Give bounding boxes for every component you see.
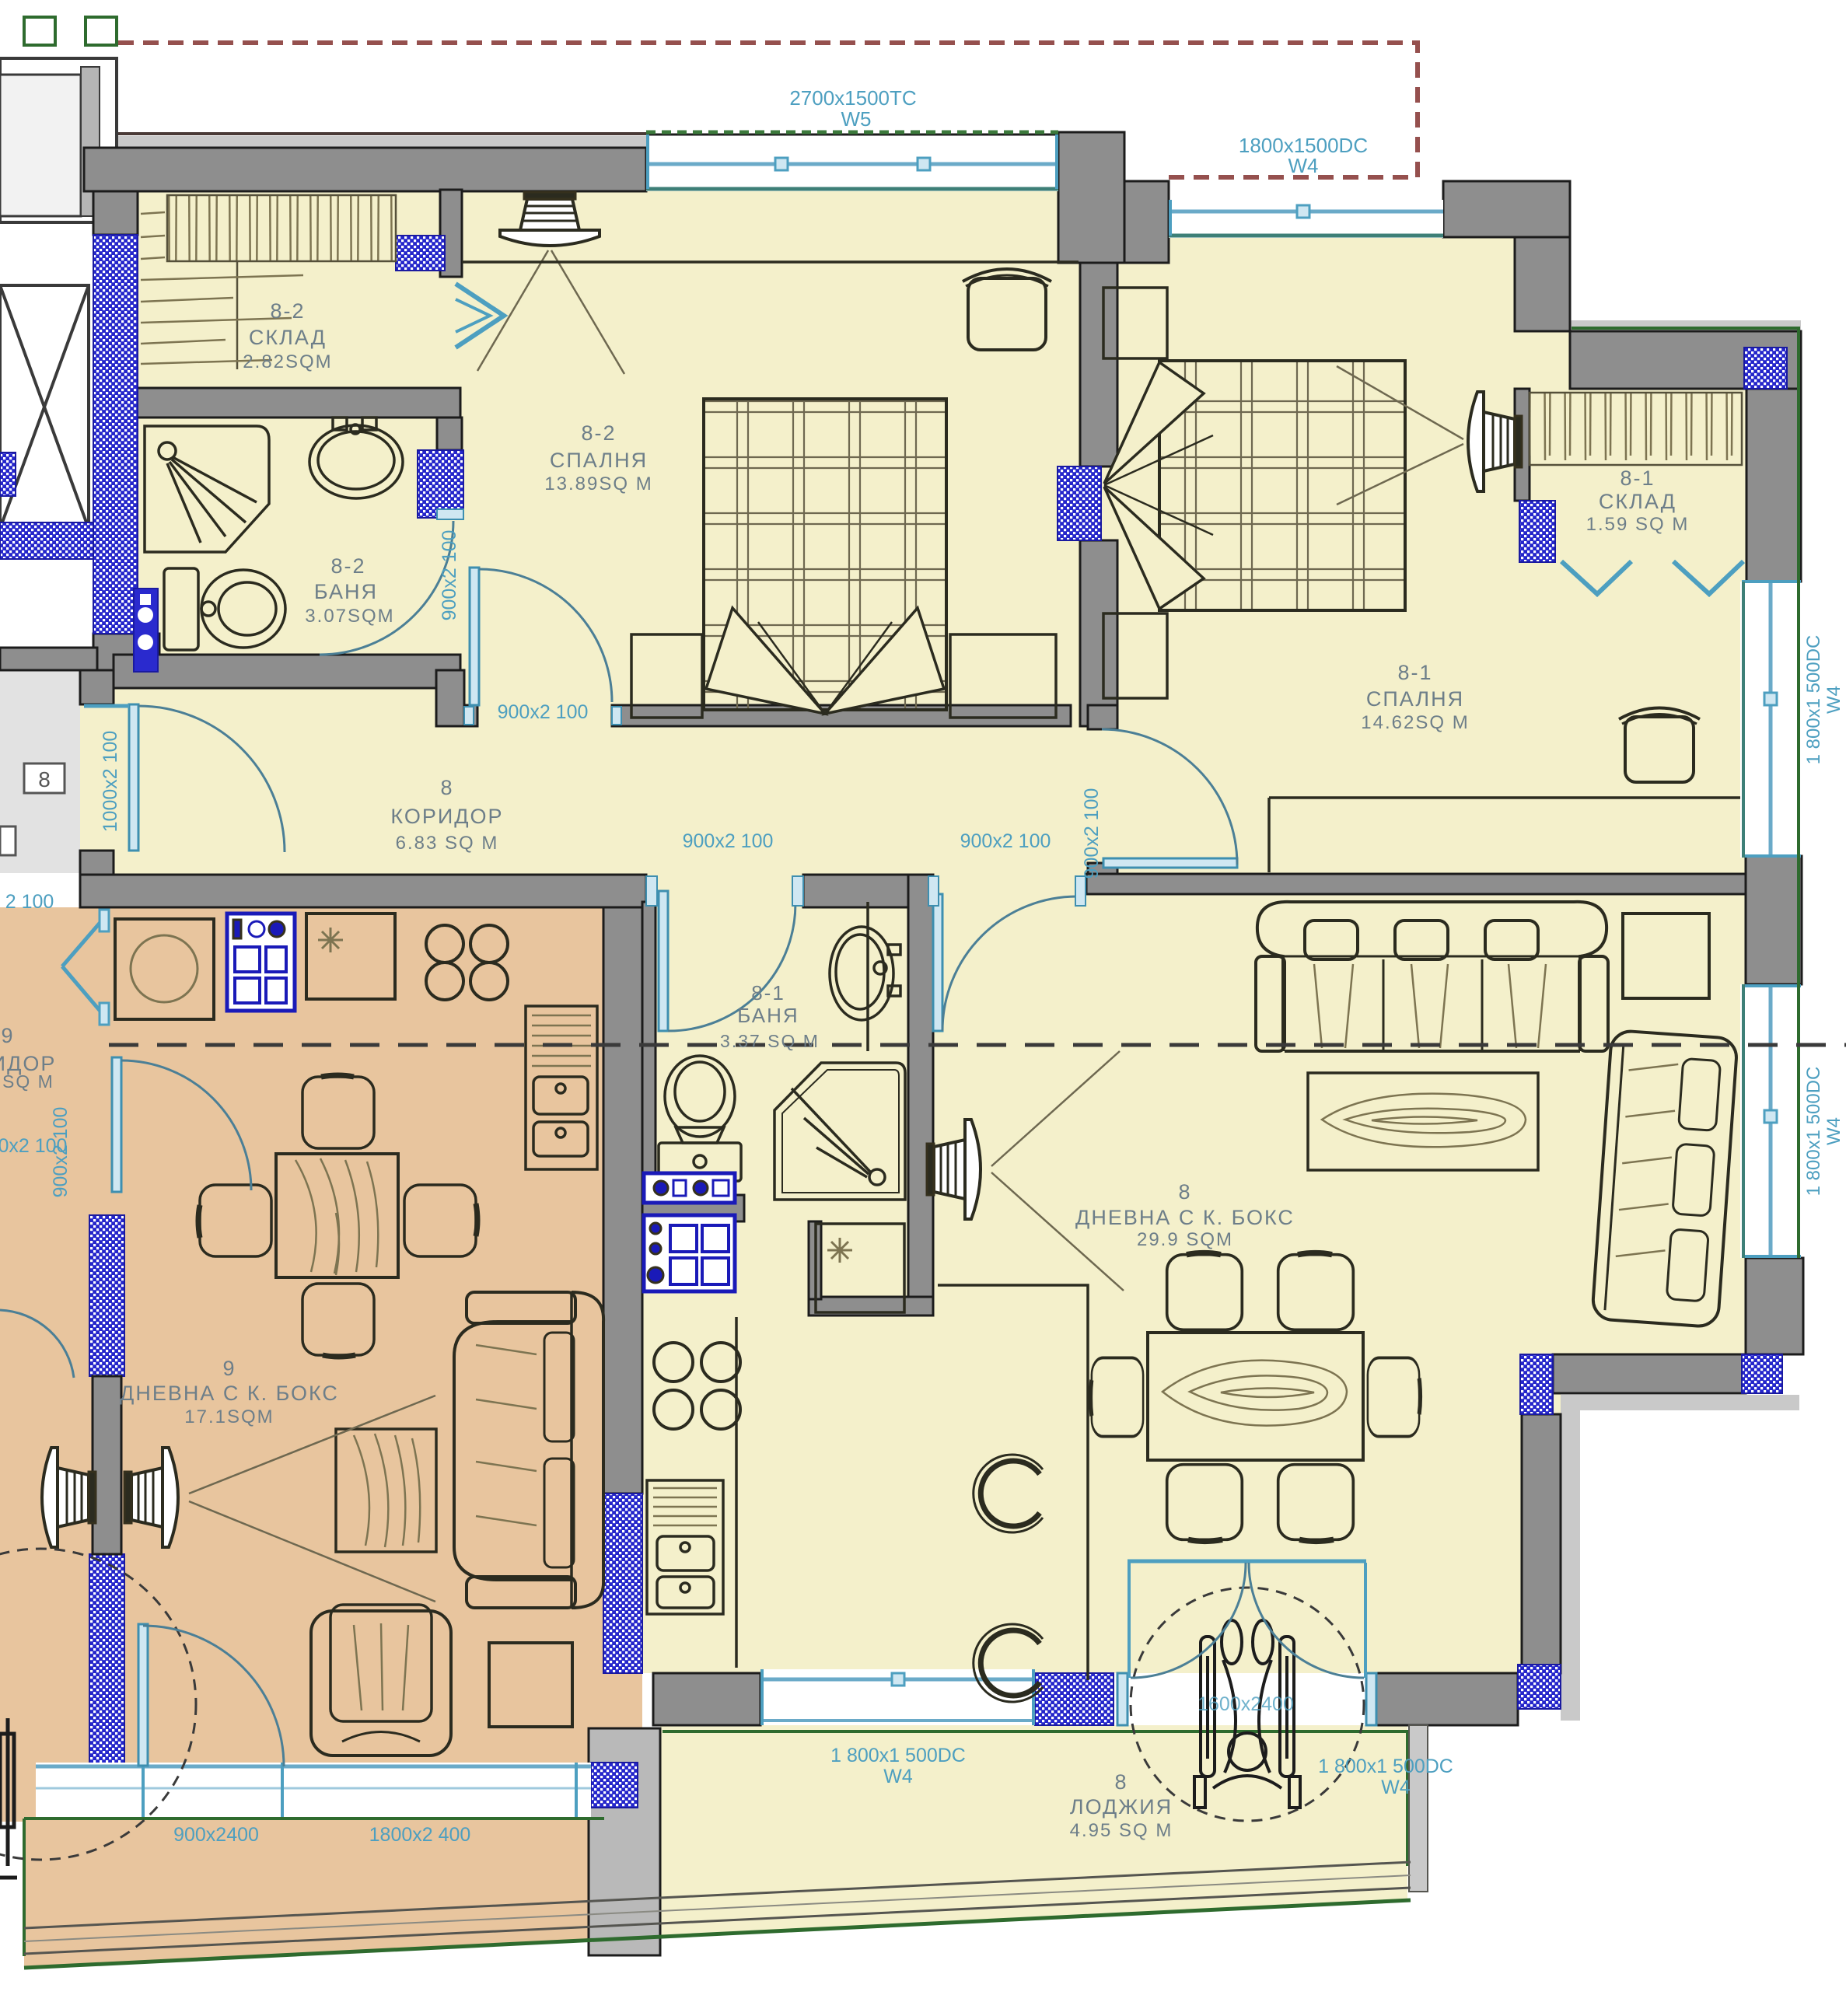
svg-text:ЛОДЖИЯ: ЛОДЖИЯ bbox=[1070, 1795, 1173, 1819]
svg-text:8: 8 bbox=[440, 776, 453, 799]
svg-text:900x2 100: 900x2 100 bbox=[498, 701, 589, 723]
svg-text:W4: W4 bbox=[1381, 1777, 1411, 1798]
svg-text:8-2: 8-2 bbox=[270, 299, 305, 323]
svg-text:2700x1500TC: 2700x1500TC bbox=[789, 86, 916, 110]
svg-text:W4: W4 bbox=[883, 1766, 913, 1787]
svg-text:900x2 100: 900x2 100 bbox=[683, 830, 774, 852]
svg-text:8-2: 8-2 bbox=[330, 554, 365, 578]
svg-text:ДНЕВНА С К. БОКС: ДНЕВНА С К. БОКС bbox=[120, 1382, 339, 1405]
svg-text:СПАЛНЯ: СПАЛНЯ bbox=[550, 449, 648, 472]
svg-text:ДНЕВНА С К. БОКС: ДНЕВНА С К. БОКС bbox=[1075, 1206, 1295, 1229]
svg-text:900x2400: 900x2400 bbox=[173, 1824, 259, 1846]
svg-text:СПАЛНЯ: СПАЛНЯ bbox=[1366, 687, 1464, 711]
svg-text:2.82SQM: 2.82SQM bbox=[243, 351, 332, 372]
svg-text:W4: W4 bbox=[1823, 686, 1844, 714]
svg-text:9: 9 bbox=[1, 1024, 14, 1047]
svg-text:БАНЯ: БАНЯ bbox=[314, 580, 378, 603]
svg-text:3.07SQM: 3.07SQM bbox=[305, 606, 394, 627]
svg-text:1 800x1 500DC: 1 800x1 500DC bbox=[1803, 1067, 1824, 1197]
svg-text:8: 8 bbox=[38, 767, 51, 791]
svg-text:1600x2400: 1600x2400 bbox=[1197, 1693, 1294, 1715]
svg-text:КОРИДОР: КОРИДОР bbox=[390, 805, 503, 828]
svg-text:29.9 SQM: 29.9 SQM bbox=[1137, 1229, 1233, 1250]
svg-text:. SQ M: . SQ M bbox=[0, 1071, 54, 1092]
svg-text:4.95 SQ M: 4.95 SQ M bbox=[1070, 1820, 1173, 1841]
svg-text:1 800x1 500DC: 1 800x1 500DC bbox=[1318, 1756, 1453, 1777]
svg-text:8-2: 8-2 bbox=[581, 421, 616, 445]
svg-text:1 800x1 500DC: 1 800x1 500DC bbox=[1803, 635, 1824, 765]
svg-text:1 800x1 500DC: 1 800x1 500DC bbox=[830, 1745, 966, 1766]
svg-text:2 100: 2 100 bbox=[5, 891, 54, 913]
svg-text:1.59 SQ M: 1.59 SQ M bbox=[1586, 514, 1690, 535]
svg-text:3.37 SQ M: 3.37 SQ M bbox=[720, 1031, 820, 1051]
svg-text:17.1SQM: 17.1SQM bbox=[184, 1406, 274, 1427]
svg-text:W4: W4 bbox=[1823, 1117, 1844, 1145]
svg-text:6.83 SQ M: 6.83 SQ M bbox=[396, 833, 499, 854]
svg-text:СКЛАД: СКЛАД bbox=[1599, 490, 1676, 513]
svg-text:8-1: 8-1 bbox=[751, 981, 785, 1005]
svg-text:СКЛАД: СКЛАД bbox=[249, 326, 327, 349]
svg-text:1000x2 100: 1000x2 100 bbox=[100, 731, 121, 833]
svg-text:БАНЯ: БАНЯ bbox=[737, 1004, 799, 1027]
svg-text:8-1: 8-1 bbox=[1620, 466, 1655, 490]
svg-text:13.89SQ M: 13.89SQ M bbox=[544, 473, 652, 494]
svg-text:8: 8 bbox=[1178, 1180, 1191, 1204]
svg-text:9: 9 bbox=[222, 1357, 236, 1380]
svg-text:1800x2 400: 1800x2 400 bbox=[369, 1824, 471, 1846]
svg-text:8: 8 bbox=[1114, 1770, 1128, 1794]
svg-text:W5: W5 bbox=[841, 107, 872, 131]
svg-text:8-1: 8-1 bbox=[1397, 661, 1432, 684]
svg-text:900x2 100: 900x2 100 bbox=[1081, 788, 1103, 879]
svg-text:14.62SQ M: 14.62SQ M bbox=[1361, 712, 1469, 733]
svg-text:900x2 100: 900x2 100 bbox=[439, 530, 460, 621]
svg-text:00x2 100: 00x2 100 bbox=[0, 1135, 67, 1157]
svg-text:W4: W4 bbox=[1288, 154, 1319, 177]
svg-text:900x2 100: 900x2 100 bbox=[960, 830, 1051, 852]
